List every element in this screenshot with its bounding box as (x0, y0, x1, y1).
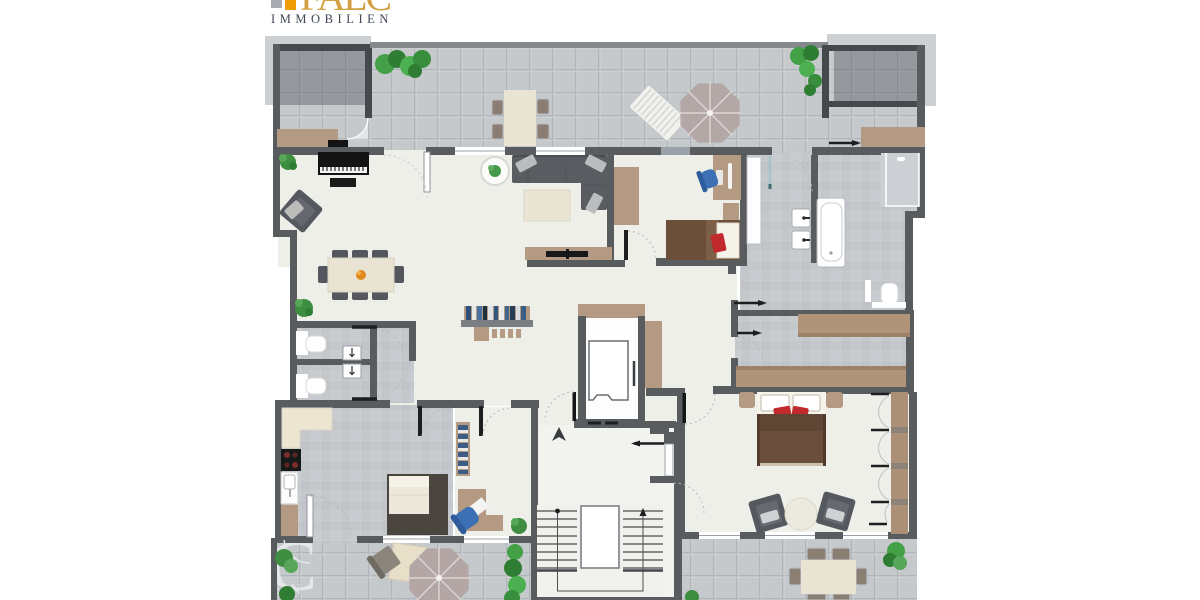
svg-text:IMMOBILIEN: IMMOBILIEN (271, 12, 391, 26)
